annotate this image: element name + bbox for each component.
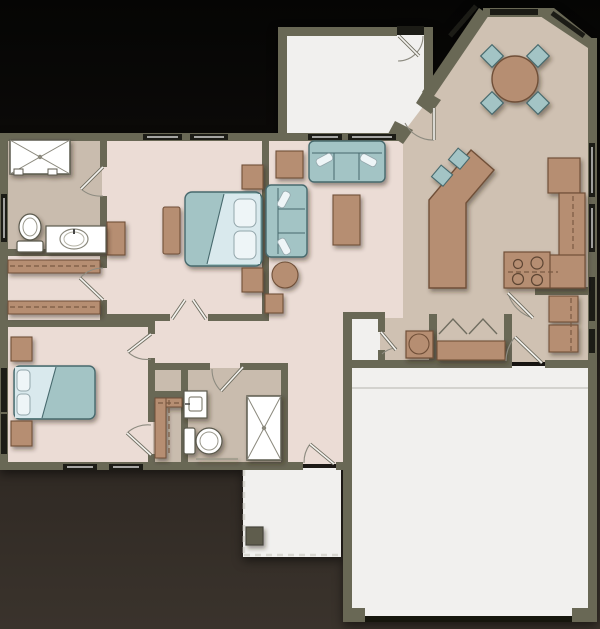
- bedroom2-closet-shelf-west: [155, 398, 166, 458]
- wall-mbath-east-top: [100, 141, 107, 167]
- porch-floor: [287, 33, 424, 136]
- bedroom2-pillow-1: [17, 370, 30, 391]
- side-table: [265, 294, 283, 313]
- master-bed-pillow-1: [234, 199, 256, 227]
- wall-bedroom2-east-top: [148, 320, 155, 334]
- bedroom2-nightstand-2: [11, 421, 32, 446]
- floor-plan: [0, 0, 600, 629]
- master-toilet-tank: [17, 241, 43, 252]
- wall-porch-top-left: [278, 27, 397, 36]
- wall-hbath-east: [281, 368, 288, 464]
- wall-garage-west: [343, 314, 352, 622]
- master-dresser: [107, 222, 125, 255]
- wall-coatcloset-east-top: [378, 312, 385, 332]
- coffee-table: [333, 195, 360, 245]
- window-bay-top: [490, 9, 538, 15]
- garage-floor: [352, 366, 590, 622]
- wall-hbath-north-right: [240, 363, 288, 370]
- corner-table: [276, 151, 303, 178]
- master-nightstand-1: [242, 165, 263, 189]
- window-left-2: [1, 368, 7, 412]
- hall-shower-drain: [262, 426, 266, 430]
- stove: [504, 252, 550, 288]
- window-right-3: [589, 277, 595, 321]
- laundry-counter: [437, 341, 505, 360]
- master-shower-tab-2: [48, 169, 57, 175]
- dryer: [549, 325, 578, 352]
- wall-bedroom2-east-mid: [148, 358, 155, 422]
- garage-door: [365, 616, 572, 622]
- wall-porch-left: [278, 27, 287, 141]
- wall-garage-north-left: [352, 360, 512, 368]
- coat-closet-floor: [350, 319, 380, 360]
- bedroom2-pillow-2: [17, 394, 30, 415]
- wall-mcloset-east-top: [100, 256, 107, 268]
- house-plan-group: [0, 6, 597, 622]
- porch-entry-opening: [397, 26, 424, 35]
- master-shower-tab-1: [14, 169, 23, 175]
- wall-garage-north-right: [545, 360, 588, 368]
- master-bench: [163, 207, 180, 254]
- floor-plan-canvas: [0, 0, 600, 629]
- dining-table: [492, 56, 538, 102]
- wall-bedroom2-north: [0, 320, 155, 327]
- master-bed-pillow-2: [234, 231, 256, 259]
- master-shower-drain: [38, 155, 42, 159]
- master-nightstand-2: [242, 268, 263, 292]
- patio-post: [246, 527, 263, 545]
- refrigerator: [548, 158, 580, 193]
- washer: [549, 296, 578, 322]
- wall-master-south-right: [208, 314, 269, 321]
- bedroom2-nightstand-1: [11, 337, 32, 361]
- hall-toilet-tank: [184, 428, 195, 454]
- round-side-table: [272, 262, 298, 288]
- wall-hbath-north-left: [155, 363, 210, 370]
- window-left-3: [1, 414, 7, 454]
- wall-master-south-left: [100, 314, 170, 321]
- wall-garage-south-left: [343, 608, 365, 622]
- window-right-4: [589, 329, 595, 353]
